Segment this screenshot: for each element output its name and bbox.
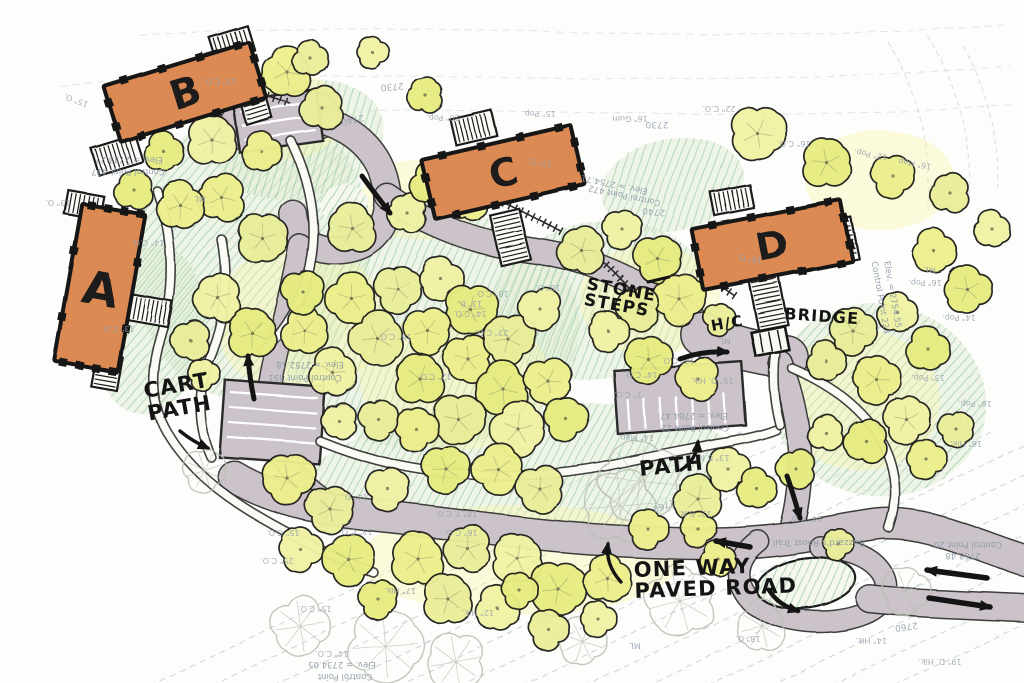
tree-trunk-dot — [303, 329, 306, 332]
survey-label: Elev. = 2733.27 — [95, 154, 163, 164]
tree-tag: 18" C.O. — [475, 289, 508, 298]
tree-twig — [608, 579, 609, 592]
annotation-text: BRIDGE — [784, 304, 860, 328]
tree-trunk-dot — [496, 607, 499, 610]
survey-label: 2768.48 — [945, 550, 980, 560]
tree-twig — [467, 346, 468, 359]
tree-trunk-dot — [546, 627, 549, 630]
tree-trunk-dot — [851, 329, 854, 332]
tree-trunk-dot — [891, 174, 894, 177]
contour-line — [140, 24, 1010, 36]
tree-trunk-dot — [424, 94, 427, 97]
tree-trunk-dot — [932, 249, 935, 252]
tree-tag: ML — [719, 336, 731, 345]
faint-tree-twig — [455, 661, 476, 676]
lot-left — [219, 380, 324, 465]
survey-label: Control Point — [317, 671, 372, 681]
tree-trunk-dot — [466, 547, 469, 550]
tree-trunk-dot — [446, 597, 449, 600]
tree-trunk-dot — [538, 487, 541, 490]
tree-trunk-dot — [516, 427, 519, 430]
contour-elevation-label: 2730 — [380, 80, 404, 92]
tree-tag: 14" Map. — [618, 433, 654, 442]
faint-tree-twig — [275, 626, 300, 630]
tree-trunk-dot — [328, 507, 331, 510]
tree-twig — [540, 476, 541, 489]
tree-tag: 18" T. C.O. — [435, 509, 477, 518]
site-plan-drawing: ABCDElev. = 2733.27Control Point 437Elev… — [0, 0, 1024, 683]
tree-trunk-dot — [405, 211, 408, 214]
tree-trunk-dot — [260, 236, 263, 239]
tree-tag: 16" Gum — [612, 114, 648, 123]
tree-twig — [484, 469, 498, 470]
survey-label: Elev. = 2764.47 — [660, 410, 728, 420]
tree-trunk-dot — [414, 427, 417, 430]
tree-trunk-dot — [620, 227, 623, 230]
faint-tree-twig — [285, 626, 300, 646]
site-plan-page: ABCDElev. = 2733.27Control Point 437Elev… — [0, 0, 1024, 683]
tree-tag: 12" B.N. — [679, 509, 712, 518]
tree-trunk-dot — [864, 439, 867, 442]
tree-trunk-dot — [285, 70, 288, 73]
tree-tag: 14" C.O. — [453, 309, 486, 318]
tree-tag: 15" C.O. — [298, 604, 331, 613]
contour-elevation-label: 2730 — [645, 119, 668, 129]
tree-trunk-dot — [260, 150, 263, 153]
building-nub — [824, 198, 833, 207]
building-nub — [797, 266, 806, 275]
step-tick — [732, 292, 737, 299]
tree-trunk-dot — [546, 379, 549, 382]
tree-trunk-dot — [538, 307, 541, 310]
building-nub — [108, 367, 117, 376]
tree-trunk-dot — [376, 597, 379, 600]
survey-label: Elev. = 2734.05 — [308, 659, 376, 669]
tree-twig — [433, 469, 446, 470]
building-nub — [103, 203, 112, 212]
tree-tag: 13" C.O. — [203, 77, 236, 86]
tree-tag: 13" Pop. — [911, 373, 944, 382]
tree-trunk-dot — [386, 487, 389, 490]
tree-tag: 15" C.O. — [266, 528, 299, 537]
tree-tag: 14" C.O. — [624, 370, 657, 379]
building-nub — [132, 257, 141, 266]
survey-label: Control Point 20 — [934, 539, 1002, 549]
faint-tree-twig — [434, 646, 455, 661]
faint-tree-twig — [741, 626, 762, 631]
building-nub — [58, 312, 67, 321]
faint-tree-twig — [451, 636, 455, 661]
tree-tag: 16" C.O. — [444, 528, 477, 537]
tree-trunk-dot — [755, 131, 758, 134]
tree-tag: 12" Hik. — [462, 608, 494, 617]
survey-label: Buzzard's Roost Trail — [773, 537, 865, 547]
tree-trunk-dot — [755, 487, 758, 490]
contour-elevation-label: 2740 — [642, 205, 666, 217]
tree-tag: ML — [194, 194, 206, 203]
faint-tree-twig — [455, 661, 459, 683]
building-nub — [136, 209, 145, 218]
tree-trunk-dot — [580, 249, 583, 252]
building-nub — [845, 239, 854, 248]
tree-trunk-dot — [396, 287, 399, 290]
tree-trunk-dot — [926, 347, 929, 350]
tree-tag: 15" C.O. — [378, 332, 411, 341]
faint-tree-twig — [300, 626, 320, 641]
building-nub — [695, 268, 704, 277]
tree-trunk-dot — [696, 527, 699, 530]
building-nub — [758, 274, 767, 283]
building-nub — [119, 206, 128, 215]
tree-tag: 15" Pop. — [522, 109, 555, 118]
tree-trunk-dot — [656, 257, 659, 260]
building-C: C — [416, 121, 589, 224]
building-nub — [690, 243, 699, 252]
tree-trunk-dot — [824, 359, 827, 362]
tree-trunk-dot — [250, 331, 253, 334]
tree-tag: 15" O. — [63, 92, 89, 109]
tree-trunk-dot — [990, 227, 993, 230]
tree-trunk-dot — [456, 417, 459, 420]
tree-tag: 12" C.O. — [418, 372, 451, 381]
tree-tag: 13" C.O. — [101, 324, 134, 333]
tree-trunk-dot — [188, 338, 191, 341]
tree-trunk-dot — [376, 417, 379, 420]
building-nub — [92, 364, 101, 373]
tree-trunk-dot — [516, 557, 519, 560]
faint-tree-twig — [280, 611, 300, 626]
building-nub — [59, 358, 68, 367]
building-nub — [746, 213, 755, 222]
tree-tag: 16" Pop. — [908, 278, 941, 287]
tree-tag: 17" Hik. — [384, 586, 416, 595]
building-nub — [708, 220, 717, 229]
contour-elevation-label: 2760 — [894, 619, 918, 632]
plan-artwork: ABCD — [50, 24, 1024, 683]
tree-trunk-dot — [904, 417, 907, 420]
tree-trunk-dot — [556, 587, 559, 590]
tree-tag: 23" C.O. — [475, 328, 508, 337]
tree-trunk-dot — [216, 296, 219, 299]
tree-trunk-dot — [965, 287, 968, 290]
tree-trunk-dot — [606, 577, 609, 580]
tree-twig — [434, 598, 448, 599]
tree-tag: 14" D. — [342, 492, 367, 501]
tree-tag: 13" C.O. — [339, 527, 372, 536]
tree-tag: 13" O. — [46, 198, 71, 207]
faint-tree-twig — [762, 626, 781, 638]
faint-tree-twig — [353, 646, 385, 648]
tree-trunk-dot — [726, 467, 729, 470]
survey-label: Elev. = 2752.18 — [276, 359, 344, 369]
tree-trunk-dot — [874, 377, 877, 380]
tree-trunk-dot — [501, 387, 504, 390]
arrow-two-way-in — [927, 570, 987, 578]
step-tick — [727, 289, 732, 296]
tree-tag: 16" Pop. — [958, 399, 991, 408]
survey-label: Control Point 22 — [661, 422, 729, 432]
building-nub — [69, 246, 78, 255]
building-nub — [87, 201, 96, 210]
faint-tree-twig — [300, 622, 325, 626]
faint-tree-twig — [680, 601, 688, 631]
tree-trunk-dot — [439, 277, 442, 280]
tree-trunk-dot — [564, 417, 567, 420]
tree-tag: 18" O. — [736, 634, 761, 643]
survey-label: Control Point 391 — [268, 372, 341, 382]
tree-tag: 14" Pop. — [942, 313, 975, 322]
faint-tree-twig — [762, 626, 767, 647]
tree-trunk-dot — [337, 419, 340, 422]
faint-tree-twig — [665, 601, 680, 628]
tree-trunk-dot — [210, 138, 213, 141]
tree-trunk-dot — [308, 56, 311, 59]
faint-tree-twig — [385, 621, 406, 646]
tree-tag: 14" Hik. — [855, 636, 887, 645]
tree-trunk-dot — [416, 557, 419, 560]
tree-tag: 14" C.O. — [131, 238, 164, 247]
annotation-bridge: BRIDGE — [784, 304, 860, 328]
building-nub — [836, 259, 845, 268]
faint-tree-twig — [455, 657, 480, 661]
faint-tree-twig — [385, 644, 417, 646]
tree-tag: 7" C.O. — [614, 390, 642, 399]
tree-trunk-dot — [596, 617, 599, 620]
tree-tag: 16" C.O. — [777, 139, 810, 148]
faint-tree-twig — [455, 640, 470, 661]
tree-trunk-dot — [954, 427, 957, 430]
tree-trunk-dot — [444, 467, 447, 470]
tree-trunk-dot — [646, 357, 649, 360]
tree-tag: ML — [924, 265, 936, 274]
faint-tree-twig — [385, 646, 387, 678]
tree-trunk-dot — [179, 204, 182, 207]
tree-trunk-dot — [949, 192, 952, 195]
building-nub — [720, 281, 729, 290]
building-nub — [75, 361, 84, 370]
tree-trunk-dot — [824, 431, 827, 434]
tree-trunk-dot — [924, 457, 927, 460]
tree-trunk-dot — [298, 547, 301, 550]
tree-trunk-dot — [286, 477, 289, 480]
building-nub — [785, 205, 794, 214]
tree-tag: 16" Hik. — [950, 439, 982, 448]
tree-trunk-dot — [301, 290, 304, 293]
tree-trunk-dot — [220, 196, 223, 199]
tree-trunk-dot — [696, 497, 699, 500]
building-nub — [840, 214, 849, 223]
ravine-contour — [963, 46, 998, 192]
tree-trunk-dot — [496, 467, 499, 470]
tree-trunk-dot — [426, 329, 429, 332]
tree-tag: 25" C.O. — [260, 556, 293, 565]
tree-trunk-dot — [794, 467, 797, 470]
survey-label: Control Point 437 — [91, 166, 164, 176]
tree-trunk-dot — [646, 527, 649, 530]
tree-trunk-dot — [677, 297, 680, 300]
tree-trunk-dot — [350, 226, 353, 229]
tree-trunk-dot — [518, 589, 521, 592]
tree-tag: 14" C.O. — [315, 649, 348, 658]
tree-trunk-dot — [606, 329, 609, 332]
faint-tree-twig — [300, 626, 304, 651]
tree-trunk-dot — [346, 557, 349, 560]
tree-tag: 22" C.O. — [702, 104, 735, 113]
tree-tag: 18" O. — [536, 283, 561, 292]
tree-trunk-dot — [320, 106, 323, 109]
tree-trunk-dot — [370, 50, 373, 53]
tree-trunk-dot — [825, 161, 828, 164]
tree-tag: 13" B. — [458, 299, 482, 308]
tree-twig — [647, 346, 648, 359]
tree-tag: 19" D. Hik. — [918, 657, 961, 666]
tree-trunk-dot — [162, 150, 165, 153]
tree-trunk-dot — [132, 188, 135, 191]
tree-trunk-dot — [466, 357, 469, 360]
tree-tag: 14" Pop. — [789, 514, 822, 523]
tree-tag: 20" Pop. — [426, 113, 459, 122]
tree-tag: 15" D. Hik. — [690, 376, 733, 385]
tree-tag: ML — [629, 641, 641, 650]
tree-trunk-dot — [350, 297, 353, 300]
bridge — [751, 326, 789, 356]
faint-tree-twig — [385, 646, 410, 667]
